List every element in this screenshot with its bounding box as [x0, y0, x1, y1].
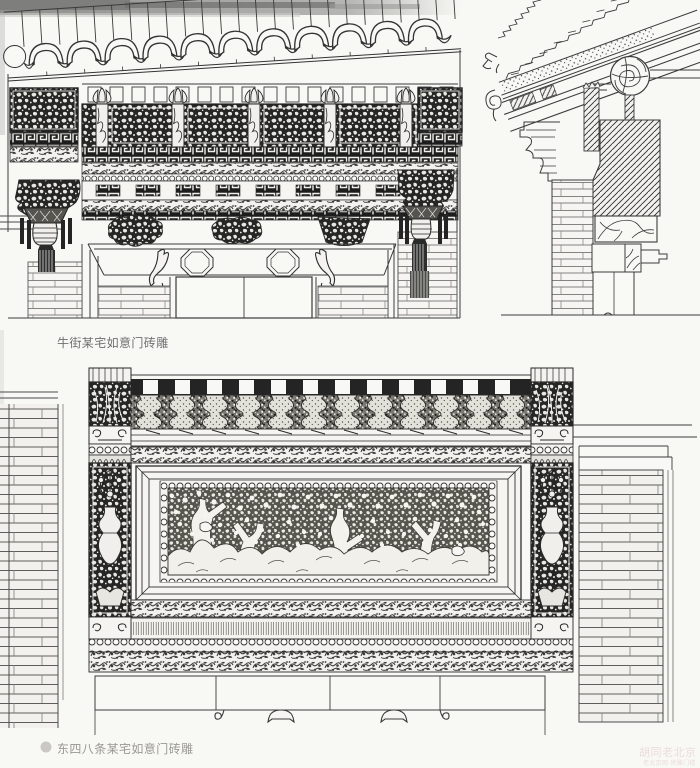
svg-text:老北京网·砖雕门楼: 老北京网·砖雕门楼	[643, 759, 696, 767]
svg-text:胡同老北京: 胡同老北京	[639, 745, 697, 759]
svg-text:东四八条某宅如意门砖雕: 东四八条某宅如意门砖雕	[57, 741, 193, 756]
svg-text:牛街某宅如意门砖雕: 牛街某宅如意门砖雕	[57, 335, 169, 350]
